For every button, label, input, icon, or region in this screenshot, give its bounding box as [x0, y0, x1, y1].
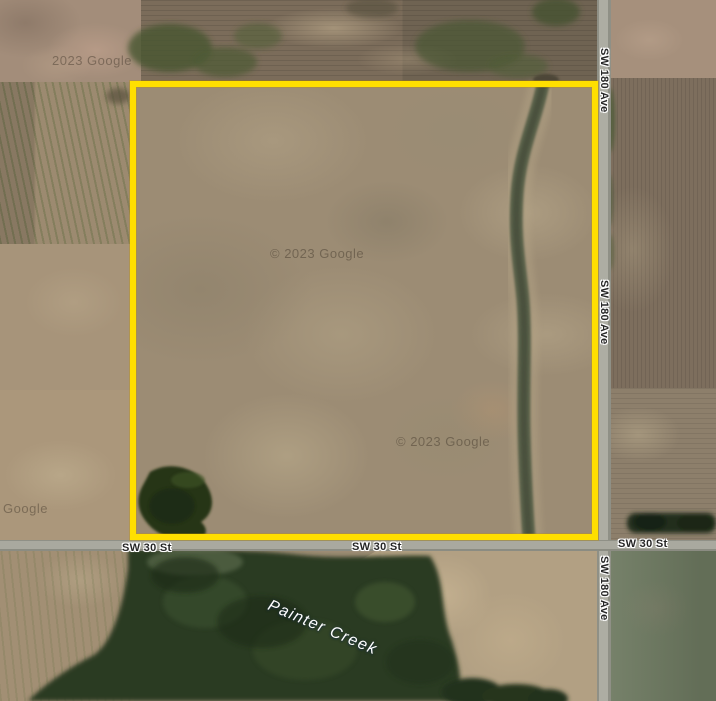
road-label-sw-180-ave-middle: SW 180 Ave [598, 280, 610, 345]
parcel-boundary [130, 81, 598, 540]
google-watermark-1: 2023 Google [52, 53, 132, 68]
google-watermark-3: © 2023 Google [396, 434, 490, 449]
trees-bottom-center [442, 678, 568, 701]
google-watermark-4: 2023 Google [0, 501, 48, 516]
tree-row-right [627, 513, 716, 533]
road-label-sw-30-st-center: SW 30 St [352, 541, 401, 553]
satellite-map[interactable]: SW 180 Ave SW 180 Ave SW 180 Ave SW 30 S… [0, 0, 716, 701]
road-label-sw-30-st-right: SW 30 St [618, 538, 667, 550]
creek-forest [28, 548, 460, 701]
road-label-sw-180-ave-bottom: SW 180 Ave [598, 556, 610, 621]
road-label-sw-180-ave-top: SW 180 Ave [598, 48, 610, 113]
road-label-sw-30-st-left: SW 30 St [122, 542, 171, 554]
google-watermark-2: © 2023 Google [270, 246, 364, 261]
